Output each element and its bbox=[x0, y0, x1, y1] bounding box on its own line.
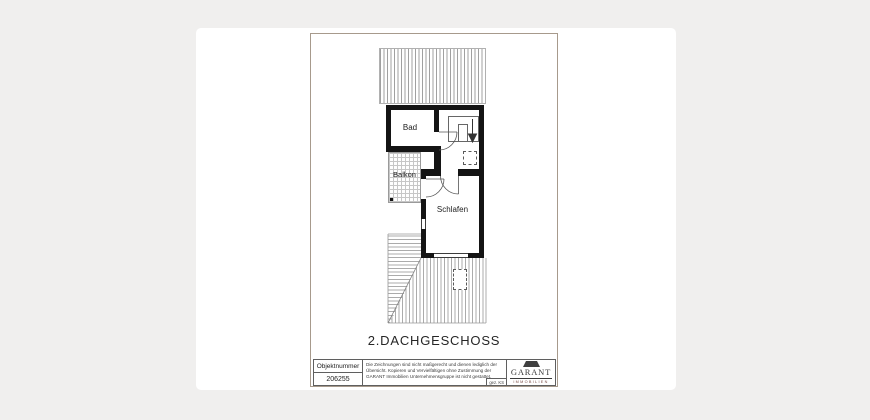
chimney-dashed-box bbox=[453, 269, 467, 290]
title-block: Objektnummer 206255 Die Zeichnungen sind… bbox=[313, 359, 556, 386]
object-number-label: Objektnummer bbox=[314, 360, 362, 373]
logo-name: GARANT bbox=[510, 367, 552, 379]
logo-subtitle: IMMOBILIEN bbox=[513, 380, 548, 384]
wall-segment bbox=[421, 169, 438, 176]
stair-direction-arrow-icon bbox=[469, 119, 477, 142]
object-number-value: 206255 bbox=[314, 373, 362, 385]
document-panel: Bad Balkon Schlafen 2.DACHGESCHOSS Objek… bbox=[196, 28, 676, 390]
disclaimer-text: Die Zeichnungen sind nicht maßgerecht un… bbox=[363, 360, 506, 380]
wall-segment bbox=[421, 253, 434, 258]
window bbox=[434, 253, 468, 258]
stair-outline bbox=[449, 117, 479, 142]
wall-segment bbox=[458, 169, 484, 176]
wall-segment bbox=[434, 105, 439, 132]
door-swing-arc bbox=[426, 179, 444, 197]
plan-sheet: Bad Balkon Schlafen 2.DACHGESCHOSS Objek… bbox=[310, 33, 558, 387]
drawn-by-box: gez. KS bbox=[486, 378, 506, 385]
disclaimer-cell: Die Zeichnungen sind nicht maßgerecht un… bbox=[363, 360, 506, 385]
room-label-schlafen: Schlafen bbox=[426, 205, 479, 214]
room-label-balkon: Balkon bbox=[388, 170, 421, 179]
door-swing-arc bbox=[441, 176, 459, 194]
door-swing-arc bbox=[439, 132, 457, 150]
stair-inner-flight bbox=[459, 125, 468, 142]
wall-segment bbox=[421, 176, 426, 179]
wall-segment bbox=[468, 253, 484, 258]
roof-icon bbox=[523, 361, 540, 367]
object-number-cell: Objektnummer 206255 bbox=[314, 360, 363, 385]
shaft-dashed-box bbox=[463, 151, 477, 165]
wall-segment bbox=[421, 229, 426, 253]
logo-cell: GARANT IMMOBILIEN bbox=[506, 360, 555, 385]
wall-segment bbox=[479, 105, 484, 258]
garant-logo: GARANT IMMOBILIEN bbox=[510, 361, 552, 385]
window bbox=[421, 219, 426, 229]
roof-hatch-top bbox=[379, 48, 486, 104]
floor-title: 2.DACHGESCHOSS bbox=[334, 333, 534, 348]
room-label-bad: Bad bbox=[390, 123, 430, 132]
